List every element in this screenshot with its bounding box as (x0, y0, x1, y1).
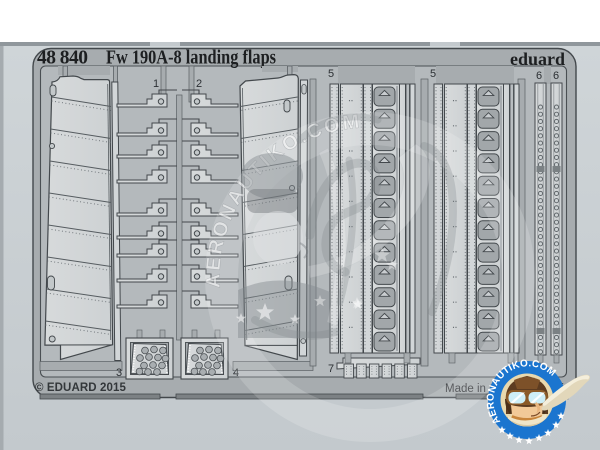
svg-text:7: 7 (328, 363, 334, 375)
svg-text:3: 3 (116, 367, 122, 379)
svg-text:5: 5 (328, 68, 334, 80)
svg-text:eduard: eduard (510, 49, 565, 69)
svg-text:© EDUARD 2015: © EDUARD 2015 (35, 382, 126, 394)
svg-text:Fw 190A-8 landing flaps: Fw 190A-8 landing flaps (106, 48, 276, 69)
svg-text:48 840: 48 840 (37, 48, 88, 69)
svg-text:6: 6 (553, 70, 559, 82)
svg-text:2: 2 (196, 78, 202, 90)
svg-text:1: 1 (153, 78, 159, 90)
svg-text:5: 5 (430, 68, 436, 80)
svg-text:6: 6 (536, 70, 542, 82)
